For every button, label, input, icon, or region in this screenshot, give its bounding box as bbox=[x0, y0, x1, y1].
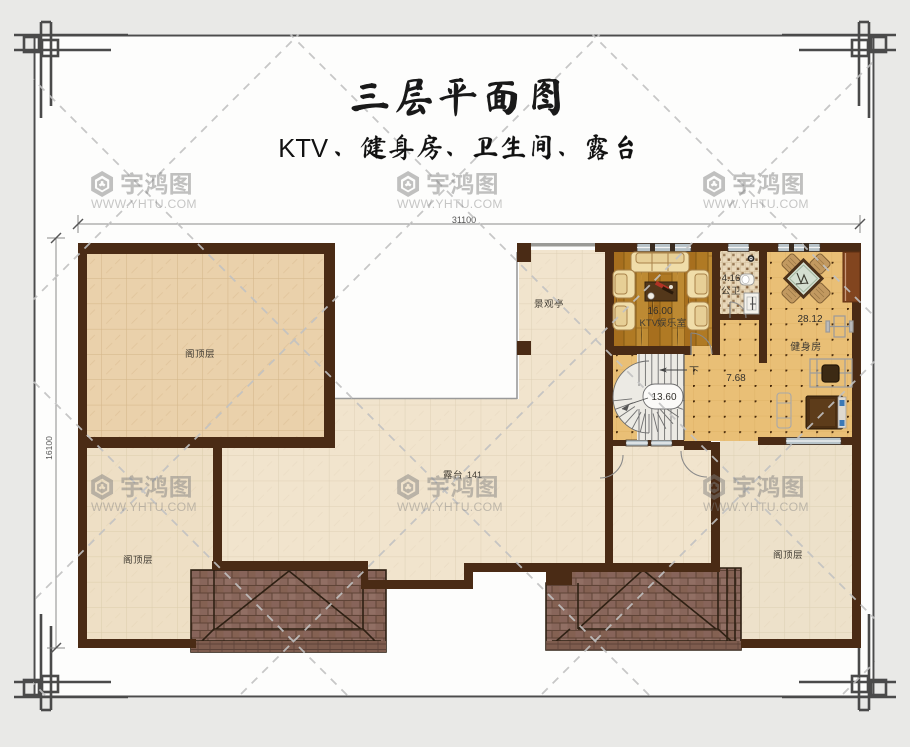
svg-text:WWW.YHTU.COM: WWW.YHTU.COM bbox=[397, 197, 503, 211]
svg-text:13.60: 13.60 bbox=[651, 392, 676, 403]
svg-text:16100: 16100 bbox=[44, 436, 54, 460]
svg-text:WWW.YHTU.COM: WWW.YHTU.COM bbox=[397, 500, 503, 514]
svg-text:7.68: 7.68 bbox=[726, 373, 746, 384]
svg-text:KTV: KTV bbox=[640, 318, 659, 329]
svg-text:KTV: KTV bbox=[278, 135, 328, 163]
svg-text:WWW.YHTU.COM: WWW.YHTU.COM bbox=[703, 500, 809, 514]
svg-text:WWW.YHTU.COM: WWW.YHTU.COM bbox=[91, 500, 197, 514]
svg-text:28.12: 28.12 bbox=[797, 314, 822, 325]
svg-text:16.00: 16.00 bbox=[647, 306, 672, 317]
svg-text:WWW.YHTU.COM: WWW.YHTU.COM bbox=[703, 197, 809, 211]
svg-text:WWW.YHTU.COM: WWW.YHTU.COM bbox=[91, 197, 197, 211]
svg-text:4.16: 4.16 bbox=[722, 273, 741, 284]
